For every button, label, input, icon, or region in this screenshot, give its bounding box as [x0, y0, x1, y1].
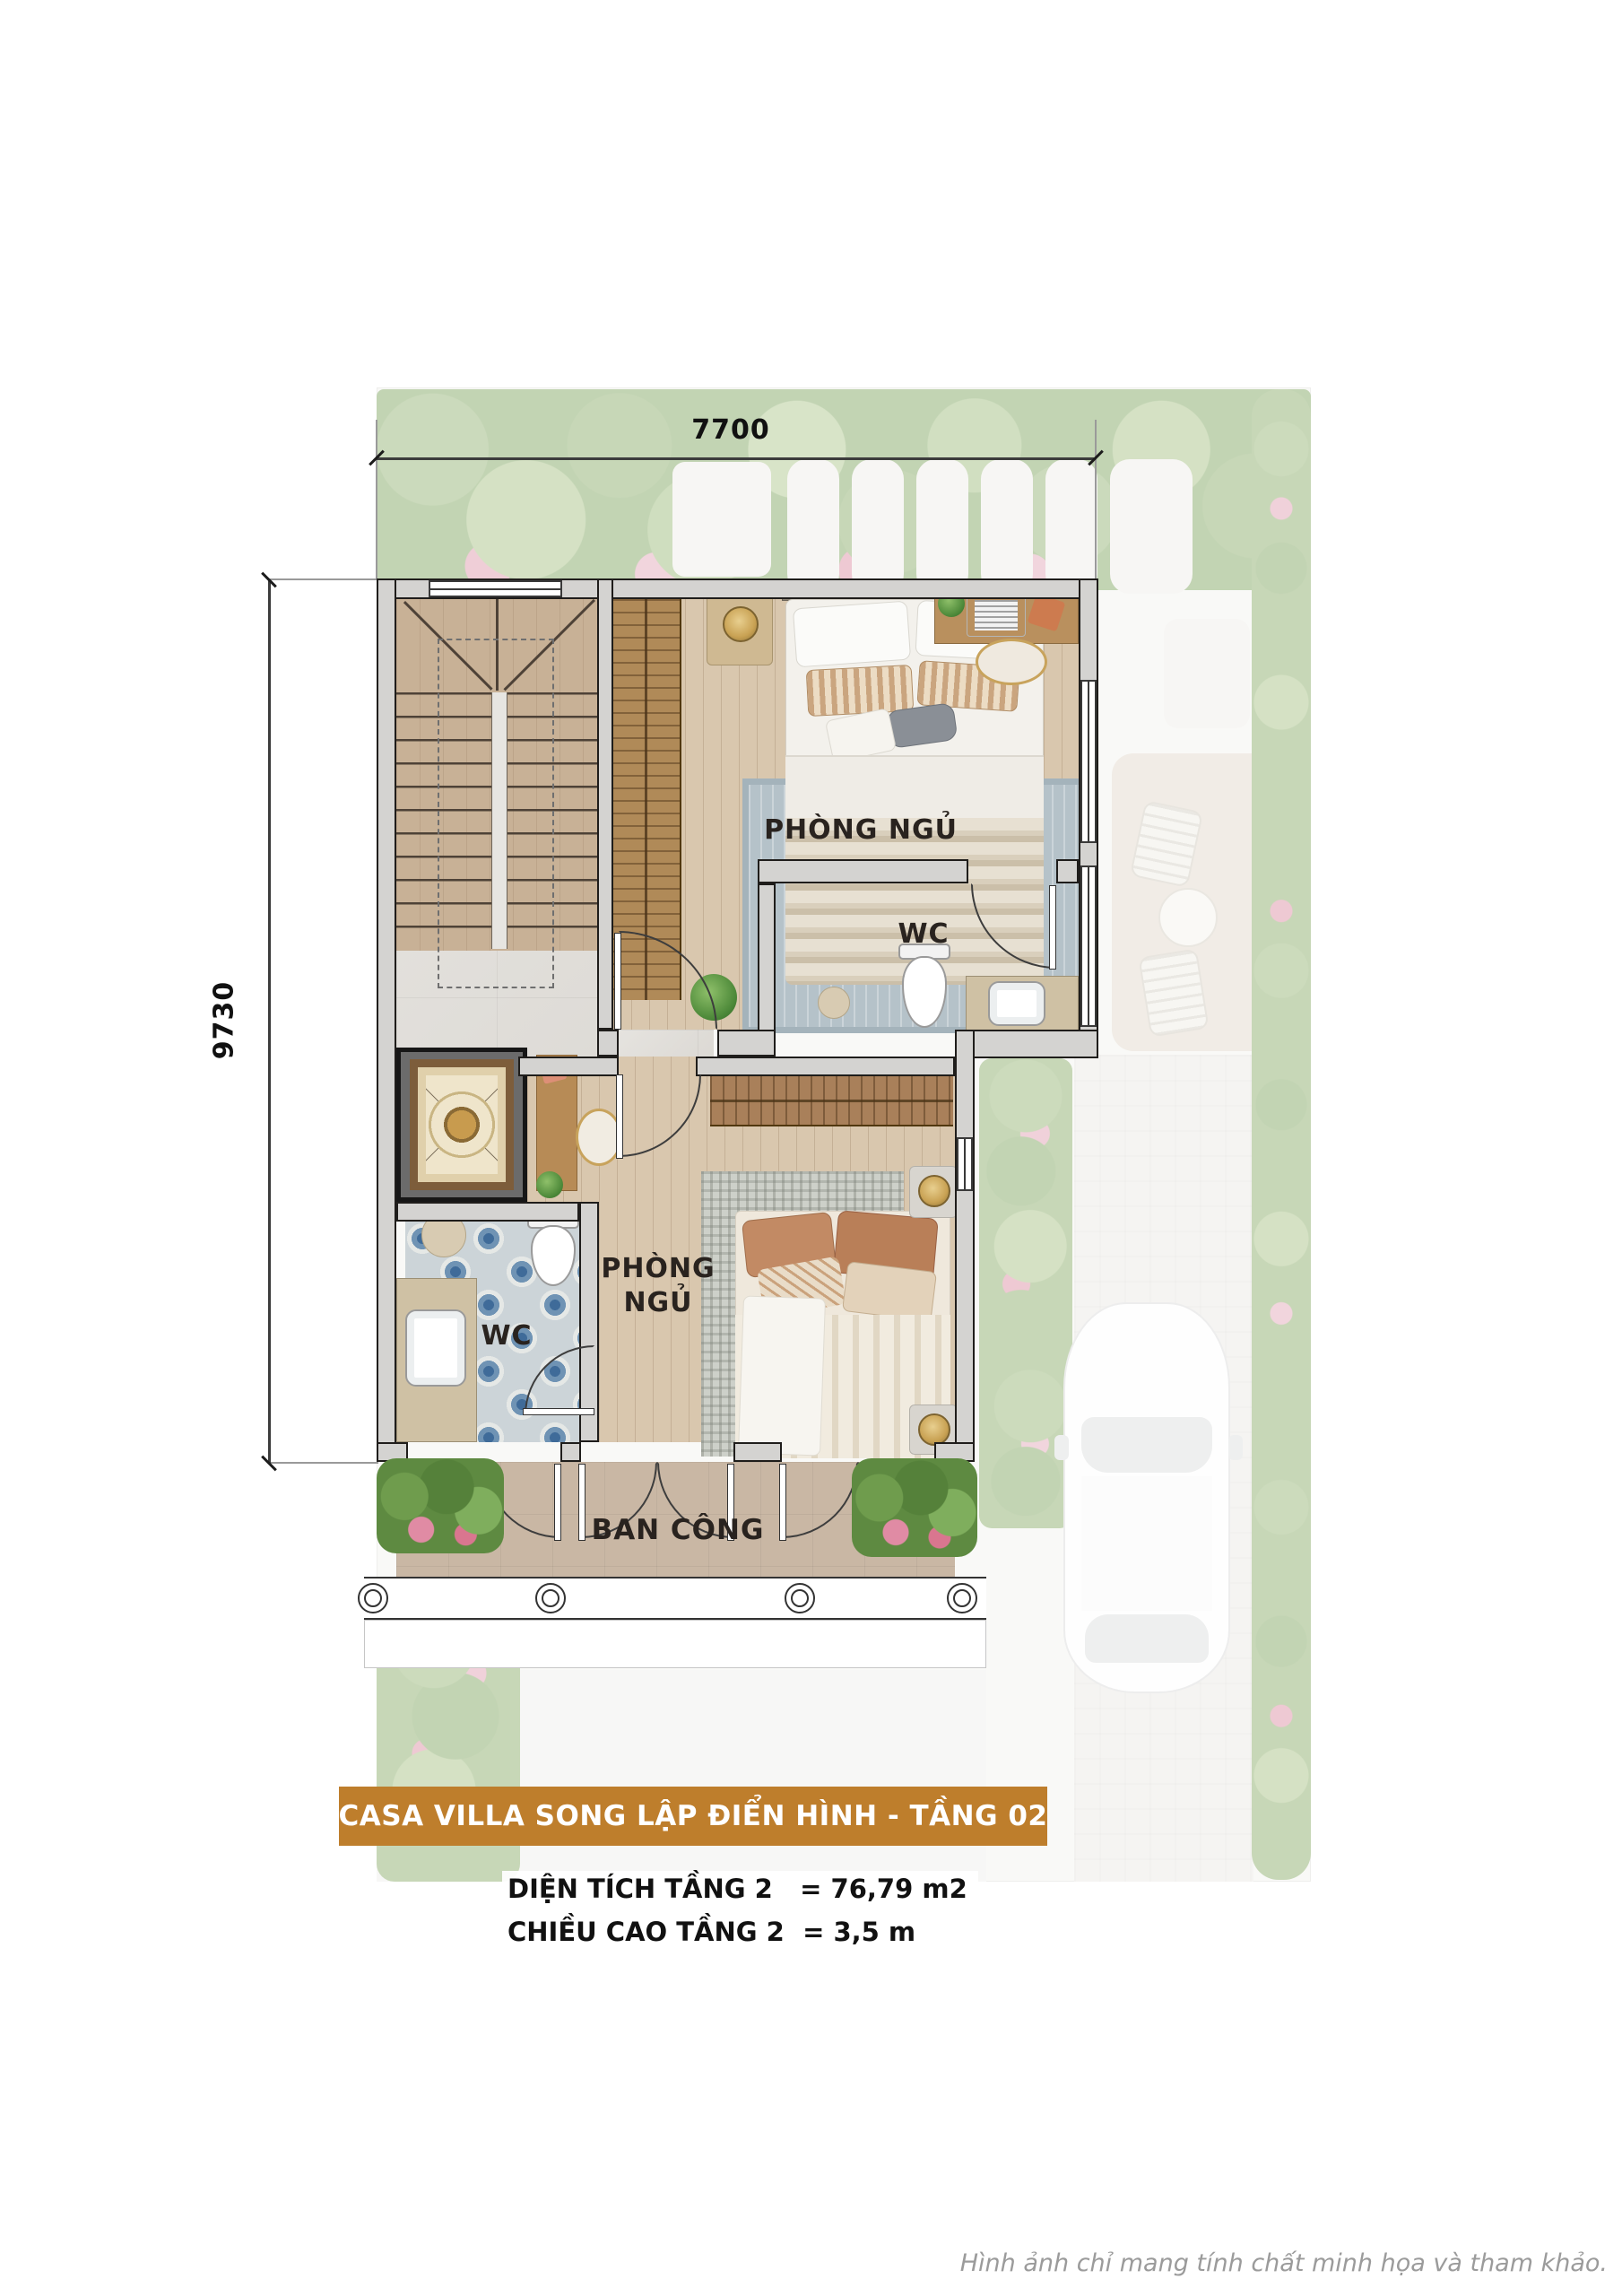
spec-height-value: = 3,5 m [802, 1917, 915, 1947]
wall-right-lower [955, 1030, 975, 1462]
hedge-right [1252, 389, 1311, 1880]
railing-post [358, 1583, 388, 1613]
spec-area: DIỆN TÍCH TẦNG 2 = 76,79 m2 [502, 1871, 978, 1907]
bed-pillow-striped [806, 665, 915, 717]
wardrobe-bedroom2 [710, 1076, 953, 1126]
wc1-stool [818, 987, 850, 1019]
door-leaf-wc1 [1049, 885, 1056, 970]
balcony-label: BAN CÔNG [574, 1514, 782, 1546]
extension-line [376, 420, 377, 579]
wall-wc2-top [396, 1202, 579, 1222]
table-lamp [918, 1175, 950, 1207]
stair-dashed-outline [438, 639, 554, 988]
dressing-nook [396, 1048, 527, 1202]
paving-pad [1045, 459, 1097, 594]
balcony-door-leaf [554, 1464, 561, 1541]
paving-pad [1164, 619, 1250, 728]
wall-bedroom1-bottom [597, 1030, 619, 1057]
bed-pillow-cream [842, 1261, 937, 1322]
wall-step [955, 1030, 1098, 1058]
paving-pad [916, 459, 968, 594]
car-mirror [1228, 1435, 1243, 1460]
window-top [429, 580, 562, 597]
wc1-sink [988, 981, 1045, 1026]
laptop [967, 594, 1026, 637]
car [1063, 1302, 1230, 1693]
bed-throw [738, 1295, 826, 1456]
dressing-plant [536, 1171, 563, 1198]
car-roof [1081, 1476, 1212, 1611]
window-wc1 [1080, 865, 1097, 1027]
door-leaf-bedroom1 [614, 933, 621, 1030]
car-mirror [1054, 1435, 1069, 1460]
spec-height-label: CHIỀU CAO TẦNG 2 [507, 1917, 785, 1947]
car-windshield [1081, 1417, 1212, 1473]
dimension-line [268, 579, 271, 1464]
wall-wc1-left [758, 883, 776, 1031]
extension-line [269, 1462, 378, 1464]
paving-pad [981, 459, 1033, 594]
bedroom1-label: PHÒNG NGỦ [762, 814, 959, 846]
wall-bedroom1-bottom [717, 1030, 776, 1057]
bed-pillow [793, 601, 911, 668]
spec-block: DIỆN TÍCH TẦNG 2 = 76,79 m2 CHIỀU CAO TẦ… [502, 1871, 1094, 1950]
dimension-height-label: 9730 [209, 940, 240, 1101]
wall-left [377, 578, 396, 1462]
spec-height: CHIỀU CAO TẦNG 2 = 3,5 m [502, 1914, 926, 1950]
title-banner: CASA VILLA SONG LẬP ĐIỂN HÌNH - TẦNG 02 [339, 1787, 1047, 1846]
paving-pad [852, 459, 904, 594]
wall-bedroom2-top [518, 1057, 619, 1076]
wall-wc1-top [1056, 859, 1079, 883]
disclaimer-text: Hình ảnh chỉ mang tính chất minh họa và … [926, 2249, 1608, 2277]
wc1-label: WC [888, 918, 959, 950]
railing-post [785, 1583, 815, 1613]
wc2-sink [405, 1309, 466, 1387]
dimension-width-label: 7700 [632, 414, 829, 446]
railing-post [947, 1583, 977, 1613]
extension-line [269, 578, 378, 580]
terrace-edge [364, 1620, 986, 1668]
door-leaf-bedroom2 [616, 1074, 623, 1159]
spec-area-value: = 76,79 m2 [800, 1874, 967, 1904]
dimension-line [377, 457, 1096, 460]
paving-pad [672, 462, 771, 577]
balcony-planter-right [852, 1458, 977, 1557]
window-bedroom1 [1080, 680, 1097, 843]
balcony-planter-left [377, 1458, 504, 1553]
patio-table [1158, 888, 1218, 947]
wall-wc1-top [758, 859, 968, 883]
desk-chair [976, 639, 1047, 685]
railing-post [535, 1583, 566, 1613]
wall-bottom [733, 1442, 782, 1462]
wall-bottom [560, 1442, 581, 1462]
bedroom2-label: PHÒNG NGỦ [595, 1252, 721, 1319]
wc2-label: WC [475, 1320, 538, 1352]
wall-divider-stair-bedroom1 [597, 578, 613, 1030]
floor-plan-sheet: 7700 9730 [0, 0, 1622, 2296]
table-lamp [918, 1413, 950, 1446]
wall-bedroom2-top [696, 1057, 955, 1076]
extension-line [1095, 420, 1097, 579]
lounge-chair [1138, 948, 1209, 1037]
door-leaf-wc2 [523, 1408, 594, 1415]
spec-area-label: DIỆN TÍCH TẦNG 2 [507, 1874, 773, 1904]
paving-pad [787, 459, 839, 594]
table-lamp [723, 606, 759, 642]
ornate-rug [410, 1059, 514, 1190]
paving-pad [1110, 459, 1193, 594]
window-bedroom2 [957, 1137, 973, 1191]
bed-duvet [785, 755, 1044, 820]
car-rear-window [1085, 1614, 1209, 1663]
balcony-railing [364, 1577, 986, 1620]
